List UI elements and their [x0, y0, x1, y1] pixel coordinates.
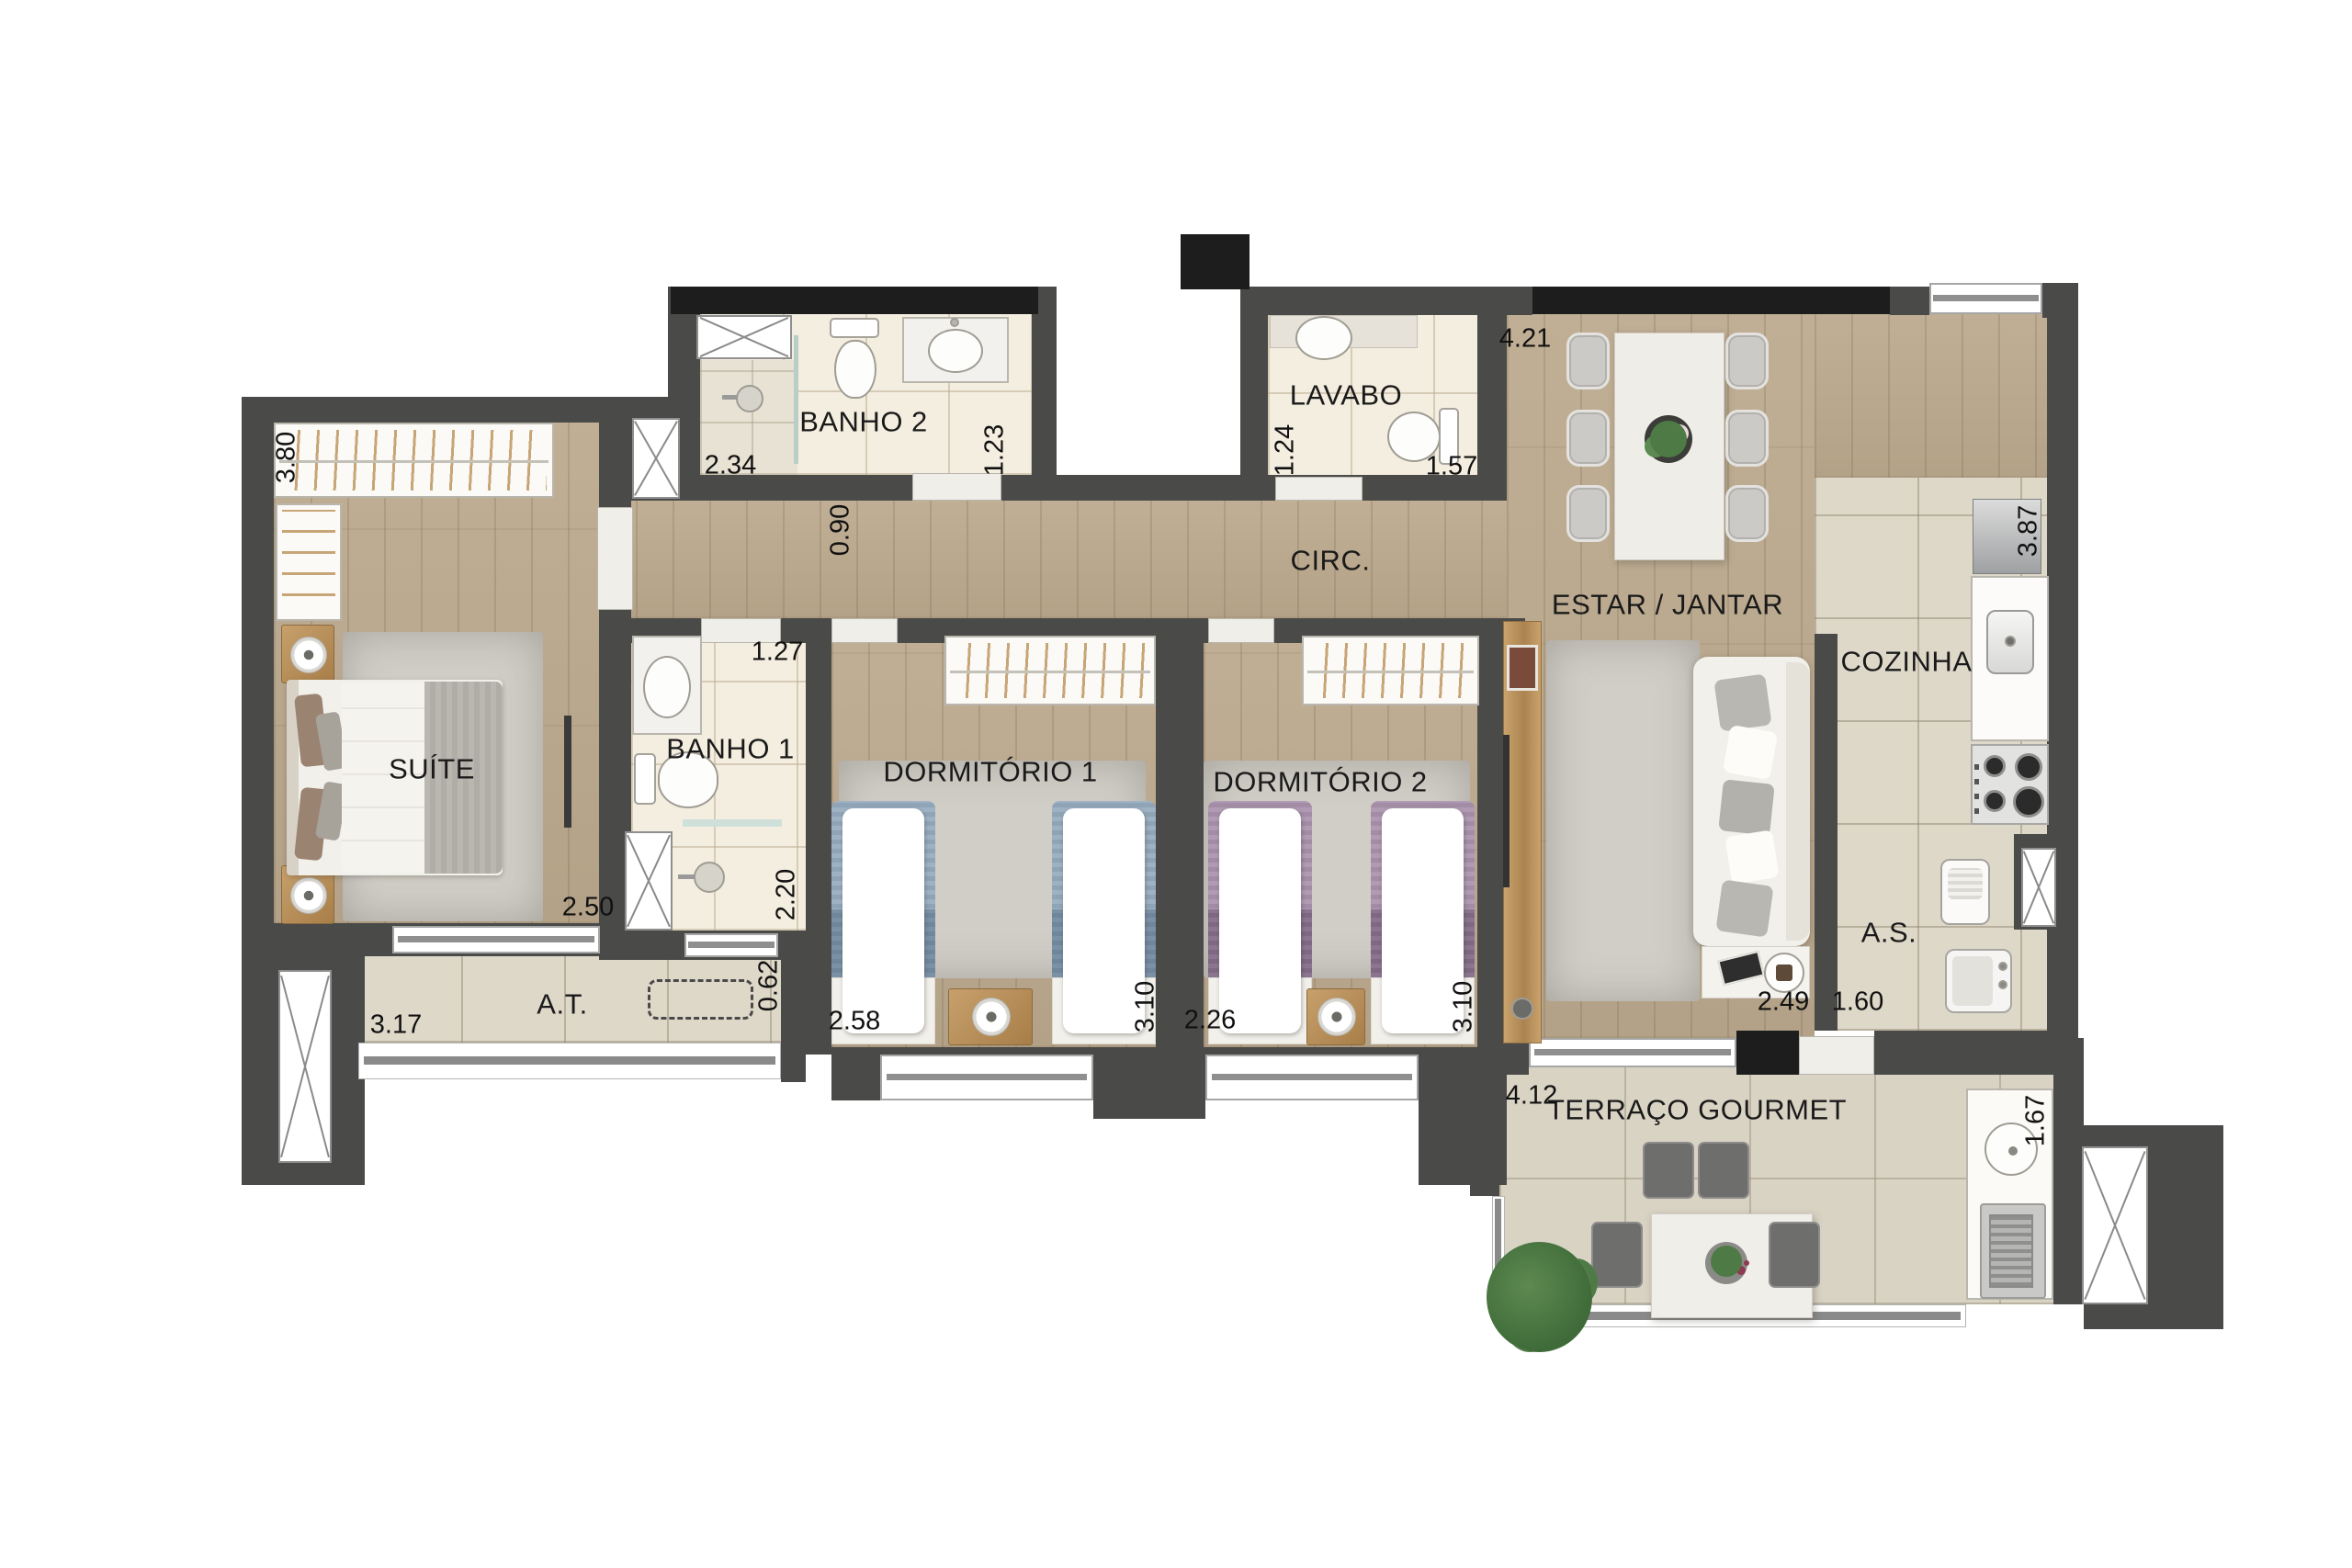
- wall-terrace-right: [1874, 1031, 2053, 1075]
- room-label-dormitorio2: DORMITÓRIO 2: [1213, 768, 1427, 796]
- dim-suite-closet: 3.80: [274, 432, 300, 483]
- wall-lavabo-top: [1240, 287, 1507, 315]
- banho2-sink: [928, 329, 983, 373]
- terrace-plant-leaves: [1711, 1246, 1742, 1277]
- dining-chair-6: [1725, 485, 1769, 542]
- sofa-cushion-3: [1718, 779, 1775, 836]
- terrace-chair-2: [1698, 1142, 1749, 1199]
- banho2-shower-arm: [722, 395, 738, 400]
- dim-dorm2-width: 2.26: [1184, 1008, 1236, 1034]
- laundry-tank: [1940, 859, 1990, 925]
- door-banho2: [912, 473, 1001, 501]
- railing-area-tecnica: [358, 1043, 781, 1079]
- dim-at-width: 3.17: [370, 1012, 422, 1039]
- column-top: [1181, 234, 1249, 289]
- wall-suite-left: [242, 397, 274, 956]
- room-label-banho1: BANHO 1: [666, 735, 795, 763]
- dining-chair-3: [1566, 485, 1610, 542]
- wall-kitchen-divider: [1815, 634, 1837, 1031]
- terrace-grill: [1980, 1203, 2046, 1299]
- lintel-estar: [1532, 287, 1890, 314]
- dim-banho2-depth: 1.23: [982, 424, 1009, 476]
- shaft-suite-banho2: [632, 418, 680, 499]
- wall-right-lower: [2047, 926, 2078, 1041]
- wall-dorm-divider: [1156, 643, 1204, 1055]
- lavabo-sink: [1295, 316, 1352, 360]
- tv-screen: [1503, 735, 1510, 887]
- door-lavabo: [1275, 477, 1363, 501]
- banho1-shower-arm: [678, 874, 695, 879]
- suite-closet: [274, 423, 554, 498]
- burner-2: [2015, 753, 2042, 781]
- wall-at-right: [781, 960, 806, 1082]
- room-label-suite: SUÍTE: [389, 755, 475, 784]
- dim-lavabo-width: 1.24: [1272, 424, 1299, 476]
- dining-chair-5: [1725, 410, 1769, 467]
- banho1-shower-head: [694, 862, 725, 893]
- dim-dorm1-depth: 3.10: [1133, 981, 1159, 1032]
- room-label-banho2: BANHO 2: [799, 408, 928, 436]
- shaft-banho1: [625, 831, 673, 931]
- dorm2-nightstand: [1306, 988, 1365, 1045]
- room-label-terraco: TERRAÇO GOURMET: [1547, 1096, 1847, 1124]
- sofa-cushion-4: [1724, 829, 1779, 884]
- shaft-southeast: [2082, 1146, 2148, 1304]
- sofa: [1693, 657, 1810, 946]
- dim-estar-depth: 2.49: [1758, 989, 1809, 1016]
- banho2-shower-head: [736, 385, 763, 412]
- wall-banho2-right: [1032, 287, 1057, 501]
- window-suite: [392, 926, 600, 953]
- washing-machine: [1945, 949, 2012, 1013]
- stove: [1971, 744, 2049, 825]
- tv-console-art: [1507, 645, 1538, 691]
- window-banho1: [684, 933, 778, 957]
- dorm1-nightstand: [948, 988, 1033, 1045]
- lintel-banho2: [671, 287, 1038, 314]
- shaft-kitchen: [2021, 848, 2056, 927]
- terrace-chair-3: [1591, 1222, 1643, 1288]
- burner-4: [2013, 786, 2044, 818]
- sofa-cushion-5: [1715, 879, 1773, 937]
- dim-banho2-width: 2.34: [705, 453, 756, 479]
- banho2-toilet-bowl: [834, 340, 876, 399]
- dim-circ-width: 0.90: [828, 504, 854, 556]
- tv-console-decor: [1511, 998, 1533, 1020]
- dim-terraco-depth: 1.67: [2023, 1095, 2050, 1146]
- door-suite: [597, 507, 633, 610]
- banho2-faucet: [950, 318, 959, 327]
- dim-cozinha-depth: 3.87: [2016, 505, 2042, 557]
- banho1-sink: [643, 656, 691, 718]
- window-kitchen-top: [1929, 283, 2042, 314]
- stove-knobs: [1974, 759, 1979, 814]
- room-label-area-servico: A.S.: [1861, 919, 1917, 947]
- wall-estar-topleft: [1507, 287, 1532, 315]
- shaft-banho2-top: [696, 315, 792, 359]
- dim-suite-width: 2.50: [562, 895, 614, 921]
- room-label-dormitorio1: DORMITÓRIO 1: [883, 758, 1097, 786]
- dining-chair-1: [1566, 333, 1610, 389]
- door-servico-terraco: [1799, 1036, 1874, 1075]
- terrace-chair-4: [1769, 1222, 1820, 1288]
- dim-at-depth: 0.62: [756, 960, 783, 1011]
- room-label-area-tecnica: A.T.: [537, 990, 587, 1019]
- wall-terrace-right-vert: [2053, 1038, 2084, 1304]
- floor-plan: SUÍTE BANHO 1 BANHO 2 LAVABO CIRC. ESTAR…: [0, 0, 2352, 1568]
- burner-3: [1984, 790, 2006, 812]
- banho2-toilet-tank: [830, 318, 879, 338]
- ac-condenser-area: [648, 979, 753, 1020]
- dim-dorm2-depth: 3.10: [1451, 981, 1477, 1032]
- dim-terraco-width: 4.12: [1506, 1083, 1557, 1110]
- wall-lavabo-left: [1240, 287, 1268, 499]
- wall-banho1-dorm1: [806, 643, 831, 1055]
- wall-pillar-mid: [1093, 1055, 1205, 1119]
- floor-circulation: [599, 501, 1507, 618]
- wall-terrace-mid: [1736, 1031, 1799, 1075]
- window-dormitorio1: [880, 1055, 1093, 1100]
- window-dormitorio2: [1205, 1055, 1419, 1100]
- dim-banho1-depth: 2.20: [774, 869, 800, 920]
- wall-lavabo-right: [1477, 287, 1507, 499]
- wall-dorm1-sill-left: [831, 1055, 880, 1100]
- floor-living-topright: [1815, 314, 2047, 478]
- banho1-shelf: [683, 819, 782, 827]
- shaft-southwest: [278, 970, 332, 1163]
- wall-terrace-left: [1470, 1067, 1499, 1196]
- dim-lavabo-depth: 1.57: [1426, 454, 1477, 480]
- suite-nightstand-1: [281, 625, 334, 683]
- dining-plant-leaves: [1650, 421, 1687, 457]
- dim-as-width: 1.60: [1832, 989, 1883, 1016]
- sofa-back: [1786, 662, 1810, 941]
- dim-dorm1-width: 2.58: [829, 1009, 880, 1035]
- dim-banho1-width: 1.27: [752, 639, 803, 666]
- window-living-terrace: [1529, 1038, 1736, 1067]
- room-label-lavabo: LAVABO: [1290, 381, 1402, 410]
- kitchen-faucet: [2005, 636, 2016, 647]
- room-label-estar-jantar: ESTAR / JANTAR: [1552, 591, 1783, 619]
- sofa-cushion-1: [1713, 673, 1771, 731]
- wall-circ-top: [631, 475, 1507, 501]
- room-label-cozinha: COZINHA: [1841, 648, 1973, 676]
- room-label-circulacao: CIRC.: [1291, 547, 1371, 575]
- banho1-toilet-tank: [634, 753, 656, 805]
- suite-tv: [564, 716, 571, 828]
- dining-chair-4: [1725, 333, 1769, 389]
- living-rug: [1546, 640, 1700, 1001]
- wall-right-outer: [2047, 287, 2078, 838]
- wall-estar-topright: [1890, 287, 1929, 315]
- door-dormitorio2: [1208, 618, 1274, 643]
- terrace-chair-1: [1643, 1142, 1694, 1199]
- dining-chair-2: [1566, 410, 1610, 467]
- sofa-cushion-2: [1723, 725, 1778, 780]
- suite-wardrobe: [276, 503, 342, 621]
- burner-1: [1984, 755, 2006, 777]
- door-dormitorio1: [831, 618, 898, 643]
- banho2-glass-partition: [794, 335, 798, 464]
- dorm2-closet: [1302, 636, 1479, 705]
- terrace-large-plant: [1487, 1242, 1592, 1352]
- dim-estar-width: 4.21: [1499, 326, 1551, 353]
- dorm1-closet: [944, 636, 1156, 705]
